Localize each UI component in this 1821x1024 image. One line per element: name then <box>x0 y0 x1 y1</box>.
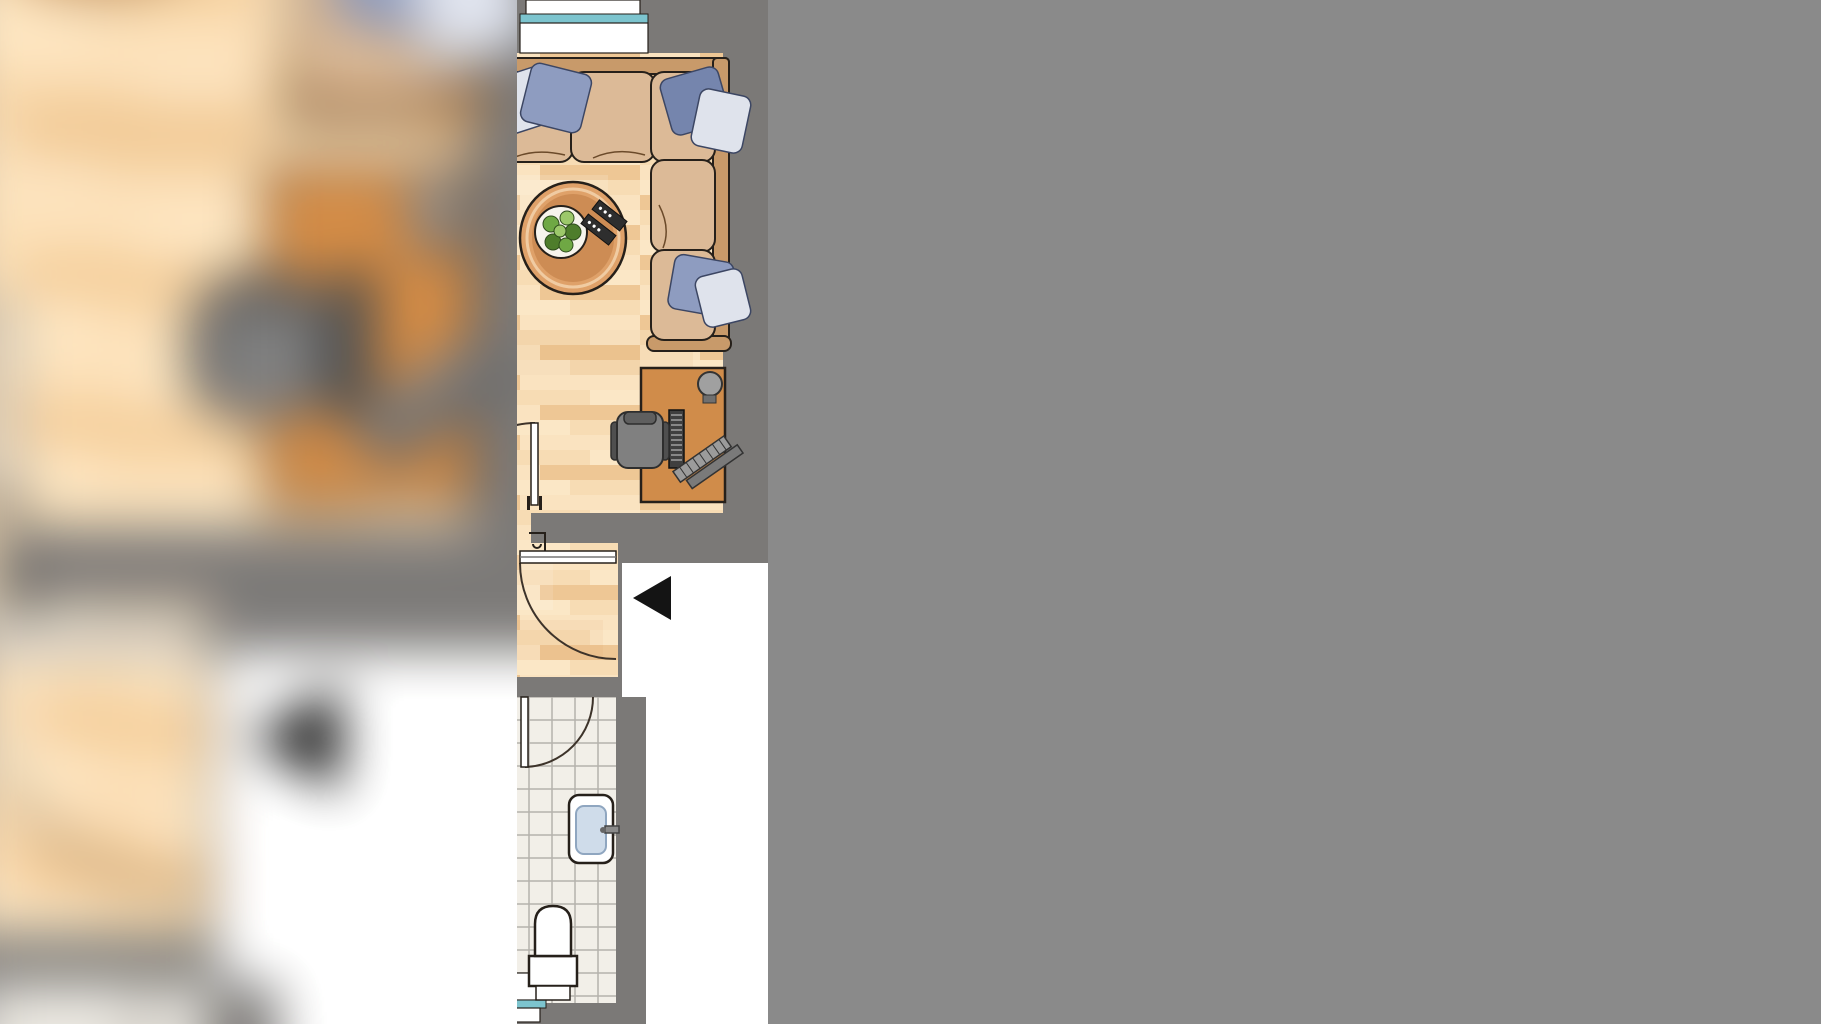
screenshot-canvas <box>0 0 1821 1024</box>
floor-plan <box>517 0 1285 1024</box>
